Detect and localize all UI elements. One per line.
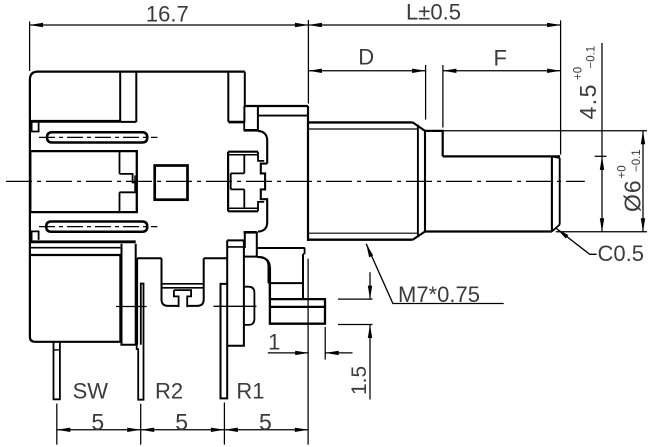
svg-text:−0.1: −0.1 <box>631 149 643 172</box>
svg-text:F: F <box>493 46 506 71</box>
svg-text:1.5: 1.5 <box>348 366 371 395</box>
svg-text:L±0.5: L±0.5 <box>406 0 461 25</box>
svg-text:SW: SW <box>73 379 109 404</box>
svg-text:M7*0.75: M7*0.75 <box>398 282 480 307</box>
svg-text:1: 1 <box>268 330 280 355</box>
svg-text:C0.5: C0.5 <box>598 241 644 266</box>
svg-text:16.7: 16.7 <box>146 2 189 27</box>
svg-text:−0.1: −0.1 <box>586 46 598 69</box>
svg-text:Ø6: Ø6 <box>620 179 646 212</box>
svg-text:R2: R2 <box>155 379 183 404</box>
svg-text:+0: +0 <box>573 67 585 80</box>
svg-text:R1: R1 <box>236 379 264 404</box>
svg-text:5: 5 <box>259 409 272 435</box>
svg-text:D: D <box>358 45 374 70</box>
svg-text:4.5: 4.5 <box>575 83 601 119</box>
svg-text:+0: +0 <box>617 165 629 178</box>
svg-text:5: 5 <box>91 409 104 435</box>
svg-text:5: 5 <box>175 409 188 435</box>
